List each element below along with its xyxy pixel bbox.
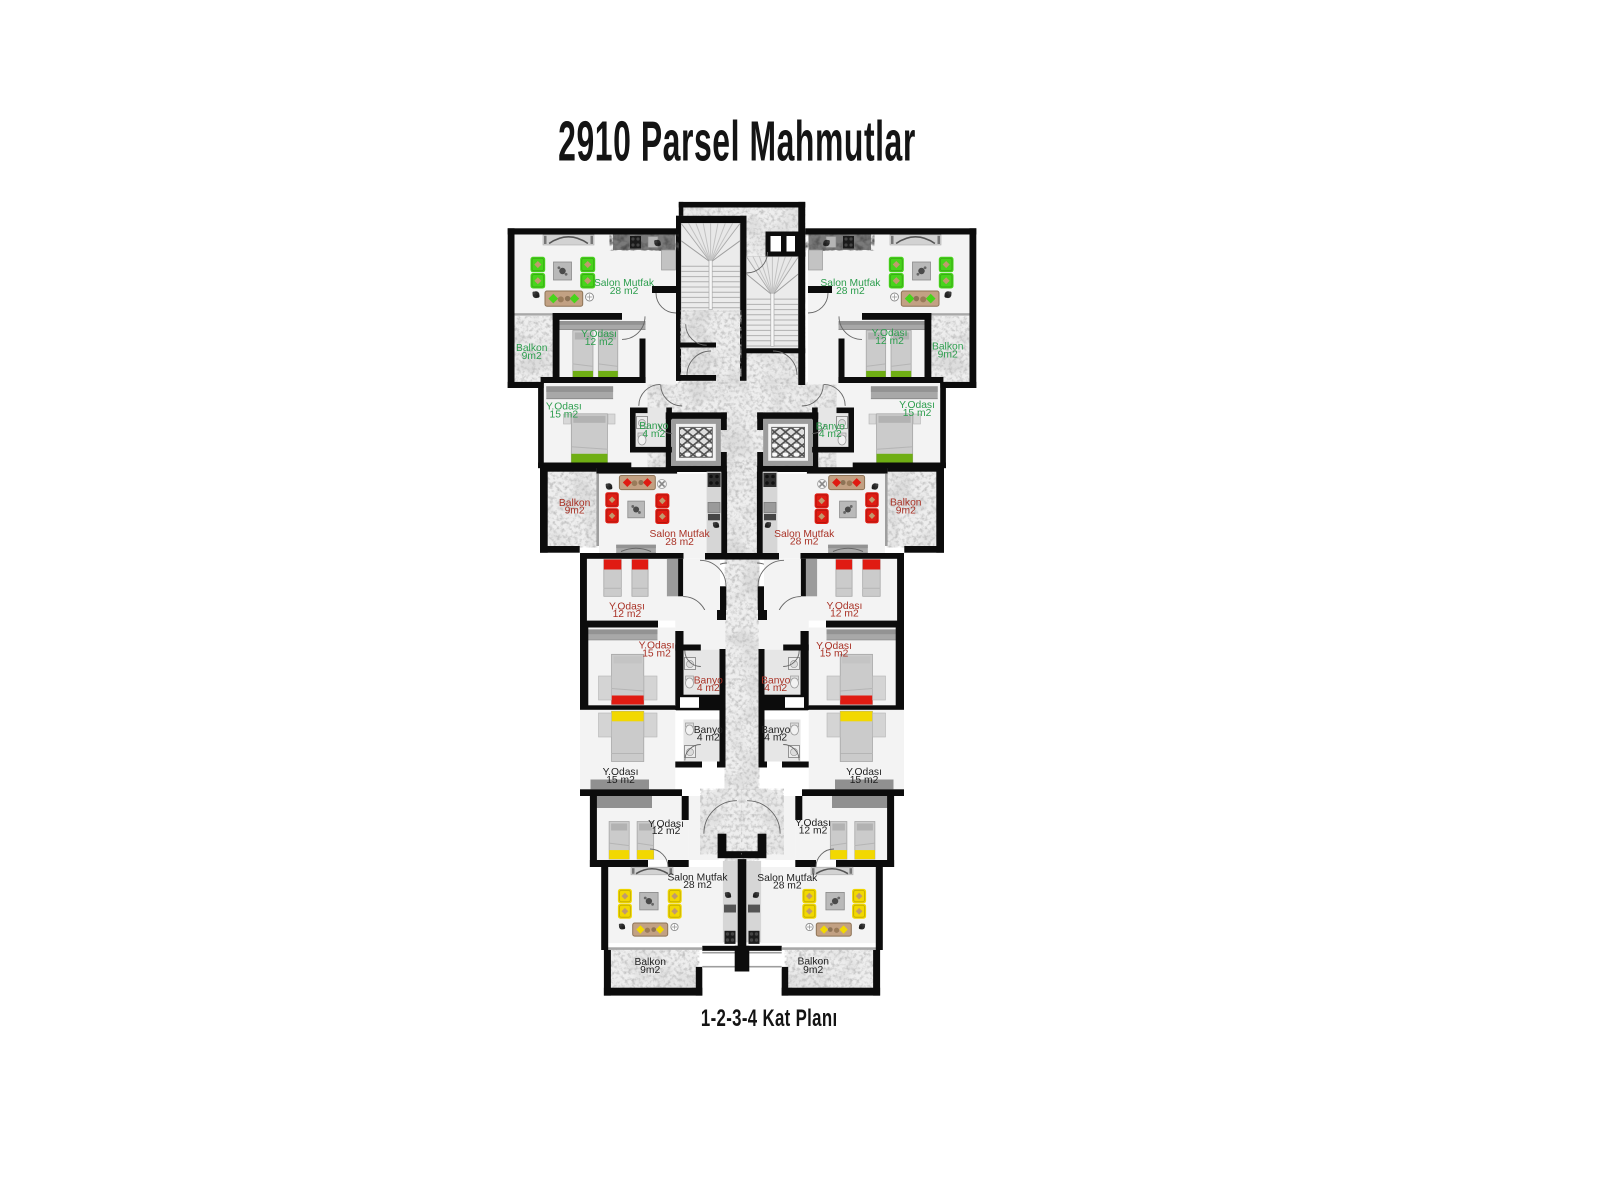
- svg-text:15 m2: 15 m2: [820, 649, 849, 660]
- svg-text:9m2: 9m2: [565, 506, 585, 517]
- svg-text:4 m2: 4 m2: [642, 429, 665, 440]
- svg-text:2910 Parsel Mahmutlar: 2910 Parsel Mahmutlar: [558, 109, 916, 173]
- svg-text:28 m2: 28 m2: [665, 537, 694, 548]
- svg-text:28 m2: 28 m2: [790, 536, 819, 547]
- svg-text:28 m2: 28 m2: [773, 881, 802, 892]
- svg-text:9m2: 9m2: [640, 965, 660, 976]
- svg-text:15 m2: 15 m2: [642, 648, 671, 659]
- svg-text:4 m2: 4 m2: [697, 683, 720, 694]
- svg-text:12 m2: 12 m2: [613, 609, 642, 620]
- svg-text:15 m2: 15 m2: [903, 408, 932, 419]
- svg-text:4 m2: 4 m2: [819, 429, 842, 440]
- svg-text:9m2: 9m2: [938, 350, 958, 361]
- svg-text:15 m2: 15 m2: [850, 775, 879, 786]
- svg-text:28 m2: 28 m2: [836, 286, 865, 297]
- svg-text:15 m2: 15 m2: [606, 775, 635, 786]
- svg-text:1-2-3-4 Kat Planı: 1-2-3-4 Kat Planı: [701, 1005, 838, 1032]
- svg-text:12 m2: 12 m2: [799, 826, 828, 837]
- svg-text:9m2: 9m2: [896, 506, 916, 517]
- svg-text:28 m2: 28 m2: [683, 880, 712, 891]
- svg-text:12 m2: 12 m2: [830, 609, 859, 620]
- svg-text:28 m2: 28 m2: [610, 286, 639, 297]
- svg-text:15 m2: 15 m2: [549, 410, 578, 421]
- svg-text:12 m2: 12 m2: [585, 337, 614, 348]
- svg-text:12 m2: 12 m2: [652, 826, 681, 837]
- svg-text:9m2: 9m2: [522, 351, 542, 362]
- svg-text:4 m2: 4 m2: [697, 733, 720, 744]
- svg-text:4 m2: 4 m2: [764, 683, 787, 694]
- svg-text:4 m2: 4 m2: [764, 733, 787, 744]
- svg-text:12 m2: 12 m2: [875, 336, 904, 347]
- svg-text:9m2: 9m2: [803, 965, 823, 976]
